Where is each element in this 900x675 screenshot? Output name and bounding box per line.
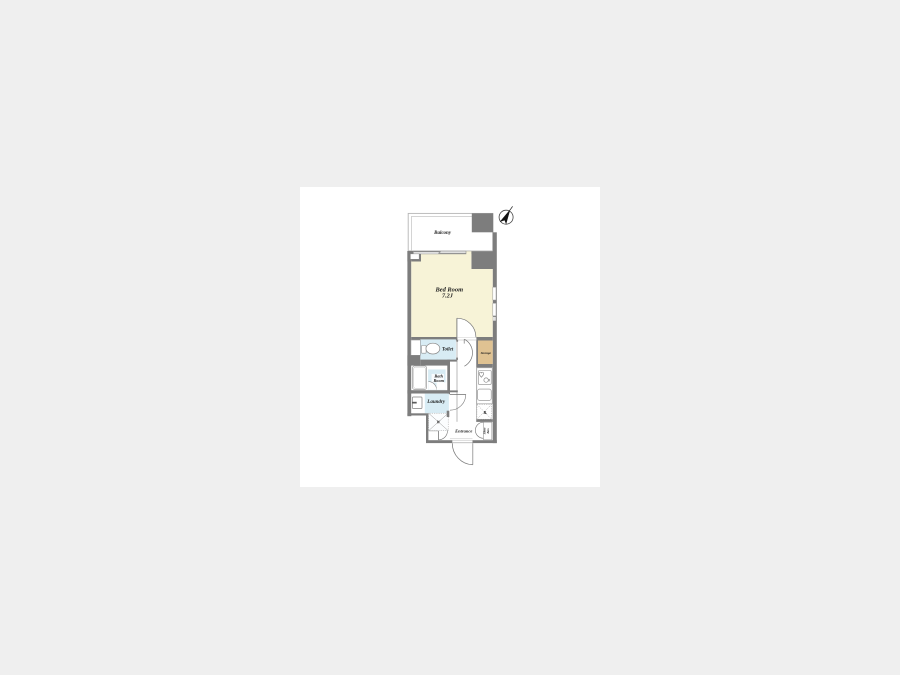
svg-text:Box: Box xyxy=(486,428,490,435)
svg-text:Balcony: Balcony xyxy=(433,231,452,236)
svg-text:Toilet: Toilet xyxy=(442,347,454,352)
svg-text:7.2J: 7.2J xyxy=(442,293,454,300)
svg-text:Storage: Storage xyxy=(481,351,492,355)
svg-text:R.: R. xyxy=(483,410,487,415)
svg-text:W: W xyxy=(437,420,441,424)
svg-text:Laundry: Laundry xyxy=(426,400,446,405)
svg-text:Entrance: Entrance xyxy=(454,429,472,434)
